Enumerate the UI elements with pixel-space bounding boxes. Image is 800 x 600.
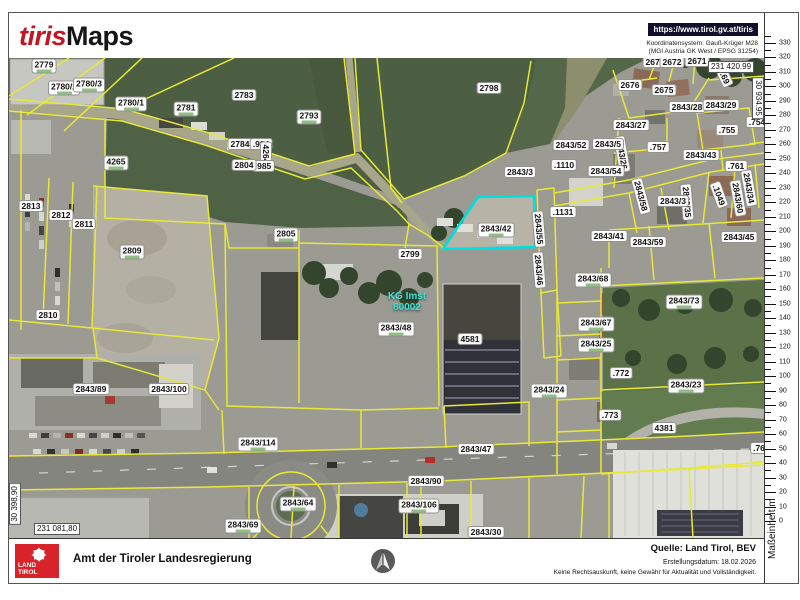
ruler-tick-label: 100 [779, 373, 791, 380]
parcel-label: .76 [750, 442, 764, 454]
ruler-tick [765, 86, 776, 87]
ruler-unit-label: Maßeinheit m [767, 498, 778, 559]
parcel-label: 2671 [685, 58, 710, 67]
map-canvas[interactable]: KG Imst 80002 27792780/22780/32780/12781… [9, 58, 764, 539]
parcel-label: 2843/100 [148, 383, 189, 395]
ruler-tick [765, 304, 776, 305]
parcel-label: 2843/69 [225, 519, 262, 534]
kg-name: KG Imst [388, 291, 426, 302]
parcel-label: 2843/43 [683, 149, 720, 161]
agency-name: Amt der Tiroler Landesregierung [73, 553, 252, 565]
ruler-tick [765, 224, 771, 225]
parcel-label: 2676 [618, 79, 643, 91]
ruler-tick [765, 449, 776, 450]
ruler-tick-label: 330 [779, 40, 791, 47]
ruler-tick-label: 200 [779, 228, 791, 235]
ruler-tick [765, 130, 776, 131]
parcel-label: 2779 [32, 59, 57, 74]
parcel-label: 2843/46 [531, 251, 546, 289]
ruler-tick [765, 434, 776, 435]
ruler-tick-label: 150 [779, 300, 791, 307]
ruler-tick-label: 270 [779, 126, 791, 133]
ruler-tick [765, 296, 771, 297]
logo-maps: Maps [66, 21, 133, 51]
ruler-tick [765, 57, 776, 58]
ruler-tick-label: 50 [779, 445, 787, 452]
source-text: Quelle: Land Tirol, BEV [554, 543, 756, 554]
ruler-tick [765, 412, 771, 413]
ruler-tick [765, 253, 771, 254]
ruler-tick-label: 80 [779, 402, 787, 409]
header: tirisMaps https://www.tirol.gv.at/tiris … [9, 13, 764, 59]
parcel-label: 2675 [652, 84, 677, 96]
ruler-tick [765, 202, 776, 203]
map-labels-layer: KG Imst 80002 27792780/22780/32780/12781… [9, 58, 764, 538]
ruler-tick [765, 470, 771, 471]
parcel-label: 2843/42 [478, 223, 515, 238]
ruler-tick [765, 441, 771, 442]
ruler-tick [765, 311, 771, 312]
ruler-tick [765, 79, 771, 80]
ruler-tick [765, 362, 776, 363]
parcel-label: 2812 [49, 209, 74, 221]
ruler-tick [765, 369, 771, 370]
parcel-label: 2843/89 [73, 383, 110, 395]
parcel-label: 4381 [652, 422, 677, 434]
parcel-label: 2843/73 [666, 295, 703, 310]
footer: LAND TIROL Amt der Tiroler Landesregieru… [9, 539, 764, 583]
ruler-tick-label: 310 [779, 68, 791, 75]
parcel-label: 2843/58 [630, 177, 651, 216]
parcel-label: 2843/5 [592, 138, 624, 150]
parcel-label: 2843/90 [408, 475, 445, 487]
ruler-tick [765, 43, 776, 44]
parcel-label: 2811 [72, 218, 96, 230]
ruler-tick [765, 188, 776, 189]
parcel-label: 2843/52 [553, 139, 590, 151]
ruler-tick [765, 333, 776, 334]
parcel-label: 2843/55 [531, 210, 546, 248]
ruler-tick [765, 94, 771, 95]
ruler-tick [765, 72, 776, 73]
ruler-tick [765, 354, 771, 355]
kg-number: 80002 [388, 302, 426, 313]
parcel-label: 2843/23 [668, 379, 705, 394]
parcel-label: 2780/1 [115, 97, 147, 112]
ruler-tick [765, 246, 776, 247]
parcel-label: 2843/28 [669, 101, 706, 113]
parcel-label: 2843/27 [613, 119, 650, 131]
ruler-tick-label: 110 [779, 358, 790, 365]
ruler-tick [765, 456, 771, 457]
ruler-tick [765, 181, 771, 182]
parcel-label: 4581 [458, 333, 483, 345]
ruler-tick [765, 427, 771, 428]
kg-label: KG Imst 80002 [388, 291, 426, 313]
parcel-label: 2804 [232, 159, 257, 171]
parcel-label: 4265 [104, 156, 129, 171]
ruler-tick-label: 280 [779, 112, 791, 119]
ruler-tick-label: 300 [779, 83, 791, 90]
ruler-tick [765, 268, 771, 269]
ruler-tick-label: 180 [779, 257, 791, 264]
parcel-label: 2843/68 [575, 273, 612, 288]
parcel-label: .755 [716, 124, 739, 136]
ruler-tick-label: 170 [779, 271, 791, 278]
parcel-label: .1049 [709, 180, 730, 210]
tiris-maps-page: tirisMaps https://www.tirol.gv.at/tiris … [0, 0, 800, 600]
parcel-label: 2843/41 [591, 230, 628, 242]
parcel-label: 2783 [232, 89, 257, 101]
coordinate-label: 231 420.99 [708, 61, 754, 73]
parcel-label: 2843/45 [721, 231, 758, 243]
ruler-tick [765, 391, 776, 392]
coordinate-system-line1: Koordinatensystem: Gauß-Krüger M28 [646, 40, 758, 48]
parcel-label: 2793 [297, 110, 322, 125]
ruler-tick-label: 130 [779, 329, 791, 336]
ruler-tick [765, 398, 771, 399]
ruler-tick [765, 159, 776, 160]
ruler-tick [765, 152, 771, 153]
ruler-tick [765, 282, 771, 283]
ruler-tick-label: 40 [779, 460, 787, 467]
ruler-tick [765, 318, 776, 319]
ruler-tick-label: 210 [779, 213, 791, 220]
parcel-label: 2843/29 [703, 99, 740, 111]
parcel-label: 2843/47 [458, 443, 495, 455]
service-url: https://www.tirol.gv.at/tiris [648, 23, 758, 36]
parcel-label: 2672 [660, 58, 685, 68]
app-logo: tirisMaps [19, 19, 133, 53]
ruler-tick [765, 173, 776, 174]
ruler-tick-label: 70 [779, 416, 787, 423]
ruler-tick-label: 140 [779, 315, 791, 322]
ruler-tick [765, 275, 776, 276]
ruler-tick [765, 325, 771, 326]
ruler-tick-label: 230 [779, 184, 791, 191]
ruler-tick [765, 195, 771, 196]
coordinate-label: 30 934.95 [752, 77, 764, 119]
ruler-tick-label: 260 [779, 141, 791, 148]
parcel-label: 2843/59 [630, 236, 667, 248]
ruler-tick-label: 0 [779, 518, 783, 525]
parcel-label: 2799 [398, 248, 423, 260]
ruler-tick [765, 289, 776, 290]
ruler-tick [765, 210, 771, 211]
parcel-label: 2843/30 [468, 526, 505, 538]
ruler-tick [765, 463, 776, 464]
parcel-label: .757 [647, 141, 670, 153]
ruler-tick [765, 347, 776, 348]
parcel-label: .772 [610, 367, 633, 379]
parcel-label: 2784 [228, 138, 253, 150]
ruler-tick-label: 120 [779, 344, 791, 351]
parcel-label: 2781 [174, 102, 199, 117]
parcel-label: 2843/48 [378, 322, 415, 337]
ruler-tick [765, 108, 771, 109]
ruler-tick-label: 190 [779, 242, 791, 249]
parcel-label: .773 [599, 409, 622, 421]
ruler-tick [765, 115, 776, 116]
parcel-label: 2805 [274, 228, 299, 243]
ruler-tick [765, 123, 771, 124]
ruler-tick [765, 420, 776, 421]
ruler-tick-label: 320 [779, 54, 791, 61]
ruler-tick [765, 492, 776, 493]
parcel-label: 2843/106 [398, 499, 439, 514]
parcel-label: 2843/64 [280, 497, 317, 512]
ruler-tick-label: 250 [779, 155, 791, 162]
ruler-tick [765, 217, 776, 218]
parcel-label: 2813 [19, 200, 44, 212]
ruler-tick [765, 166, 771, 167]
ruler-tick-label: 160 [779, 286, 791, 293]
ruler-tick [765, 36, 771, 37]
north-arrow-icon [370, 548, 396, 579]
ruler-tick [765, 239, 771, 240]
ruler-tick-label: 290 [779, 97, 791, 104]
ruler-tick-label: 10 [779, 503, 787, 510]
ruler-tick-label: 60 [779, 431, 787, 438]
parcel-label: 2843/24 [531, 384, 568, 399]
ruler-tick [765, 405, 776, 406]
coordinate-system-info: Koordinatensystem: Gauß-Krüger M28 (MGI … [646, 40, 758, 56]
coordinate-system-line2: (MGI Austria GK West / EPSG 31254) [646, 48, 758, 56]
logo-tiris: tiris [19, 21, 66, 51]
ruler-tick [765, 144, 776, 145]
disclaimer-text: Keine Rechtsauskunft, keine Gewähr für A… [554, 569, 756, 576]
ruler-tick [765, 260, 776, 261]
parcel-label: .1110 [551, 159, 577, 171]
parcel-label: 2843/3 [657, 195, 689, 207]
ruler-tick-label: 90 [779, 387, 787, 394]
ruler-tick [765, 137, 771, 138]
ruler-tick-label: 30 [779, 474, 787, 481]
coordinate-label: 30 398,90 [9, 483, 21, 525]
ruler-tick [765, 65, 771, 66]
ruler-tick-label: 240 [779, 170, 791, 177]
ruler-tick [765, 340, 771, 341]
ruler-tick-label: 220 [779, 199, 791, 206]
ruler-tick [765, 231, 776, 232]
parcel-label: 2780/3 [73, 78, 105, 93]
land-tirol-text: LAND TIROL [18, 562, 38, 576]
scale-ruler: 3303203103002902802702602502402302202102… [764, 13, 798, 583]
parcel-label: .1131 [550, 206, 577, 218]
ruler-tick [765, 485, 771, 486]
parcel-label: 2843/114 [238, 437, 279, 452]
land-tirol-logo: LAND TIROL [15, 544, 59, 578]
parcel-label: 2843/67 [578, 317, 615, 332]
print-frame: tirisMaps https://www.tirol.gv.at/tiris … [8, 12, 799, 584]
ruler-tick [765, 101, 776, 102]
ruler-tick [765, 383, 771, 384]
ruler-tick-label: 20 [779, 489, 787, 496]
parcel-label: 2810 [36, 309, 61, 321]
source-block: Quelle: Land Tirol, BEV Erstellungsdatum… [554, 543, 756, 576]
ruler-tick [765, 50, 771, 51]
parcel-label: 2809 [120, 245, 145, 260]
parcel-label: 2843/54 [588, 165, 625, 177]
creation-date: Erstellungsdatum: 18.02.2026 [554, 559, 756, 566]
coordinate-label: 231 081,80 [34, 523, 80, 535]
parcel-label: 2843/25 [578, 338, 615, 353]
parcel-label: 2843/3 [504, 166, 536, 178]
ruler-tick [765, 376, 776, 377]
ruler-tick [765, 478, 776, 479]
parcel-label: 2798 [477, 82, 502, 94]
